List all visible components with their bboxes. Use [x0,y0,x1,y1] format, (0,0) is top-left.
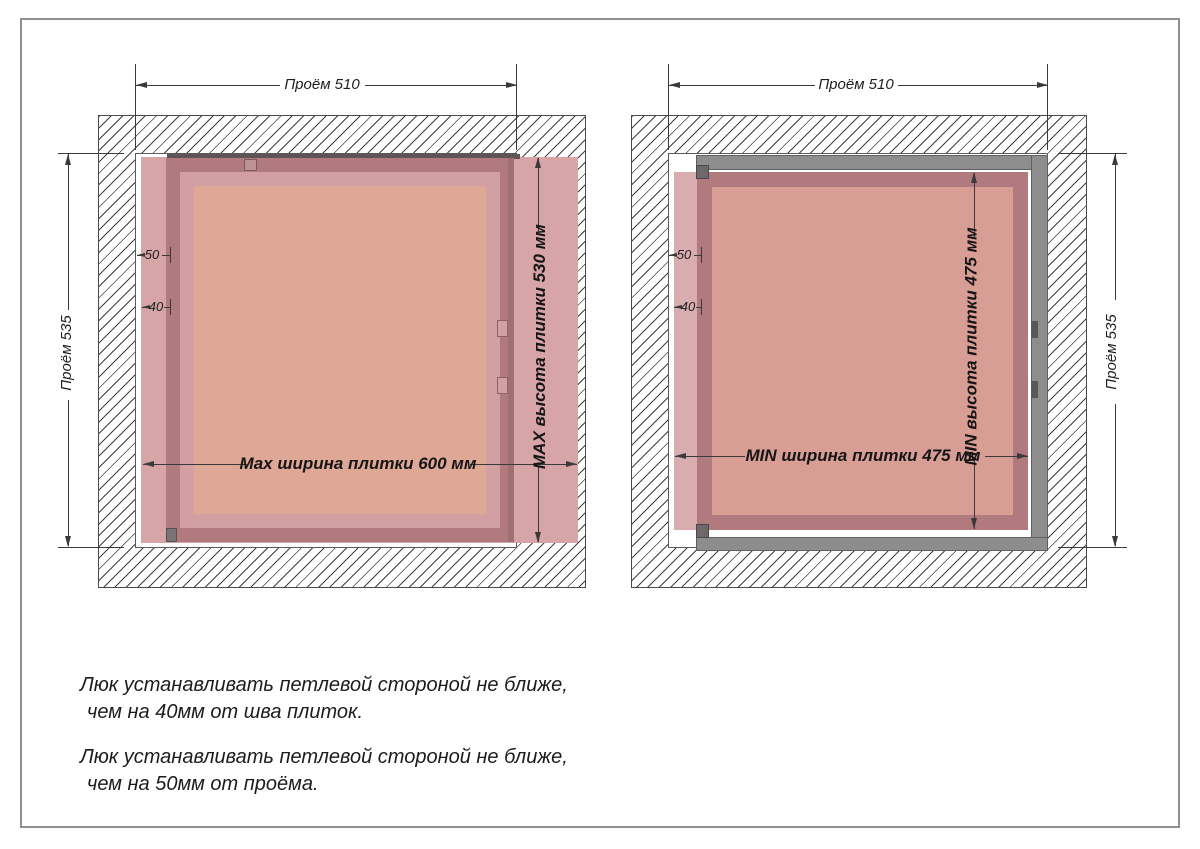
hinge-pin [244,159,257,171]
dim-tile-width-label: Max ширина плитки 600 мм [238,454,478,474]
metal-frame-bottom [696,537,1048,551]
extension-line [1047,64,1048,150]
tile-min-strip [674,172,697,530]
dim-tick [701,247,702,263]
latch-pin [1031,321,1038,338]
dim-hinge-offset-50: 50 [137,248,167,262]
latch-pin [497,320,508,337]
arrowhead-left [675,453,686,459]
arrowhead-up [535,157,541,168]
dim-hinge-offset-50: 50 [669,248,699,262]
dim-line [143,464,247,465]
metal-frame-top [696,155,1048,170]
dim-line [470,464,577,465]
dim-tile-height-label: MIN высота плитки 475 мм [962,231,982,466]
arrowhead-right [1017,453,1028,459]
arrowhead-right [566,461,577,467]
arrowhead-left [143,461,154,467]
latch-pin [1031,381,1038,398]
dim-opening-height-label: Проём 535 [58,278,76,428]
extension-line [1058,547,1127,548]
arrowhead-up [971,172,977,183]
dim-opening-height-label: Проём 535 [1103,277,1121,427]
arrowhead-down [65,536,71,547]
note-line: чем на 40мм от шва плиток. [87,701,363,724]
arrowhead-right [506,82,517,88]
extension-line [516,64,517,150]
dim-line [538,158,539,232]
arrowhead-left [669,82,680,88]
arrowhead-down [535,532,541,543]
arrowhead-up [1112,154,1118,165]
note-line: Люк устанавливать петлевой стороной не б… [80,674,568,697]
drawing-canvas: Проём 510 Проём 535 Max ширина плитки 60… [0,0,1200,849]
extension-line [58,547,124,548]
latch-pin [497,377,508,394]
extension-line [668,64,669,150]
door-right-edge [508,158,514,542]
note-line: Люк устанавливать петлевой стороной не б… [80,746,568,769]
hinge-pin [166,528,177,542]
extension-line [135,64,136,150]
arrowhead-down [971,518,977,529]
dim-tile-height-label: MAX высота плитки 530 мм [530,229,550,469]
dim-opening-width-label: Проём 510 [781,76,931,94]
hinge-pin [696,524,709,538]
dim-tile-width-label: MIN ширина плитки 475 мм [743,446,983,466]
metal-frame-right [1031,155,1048,551]
note-line: чем на 50мм от проёма. [87,773,319,796]
hinge-pin [696,165,709,179]
dim-opening-width-label: Проём 510 [247,76,397,94]
arrowhead-right [1037,82,1048,88]
arrowhead-up [65,154,71,165]
dim-line [538,466,539,542]
arrowhead-left [136,82,147,88]
dim-hinge-offset-40: 40 [141,300,171,314]
arrowhead-down [1112,536,1118,547]
dim-hinge-offset-40: 40 [673,300,703,314]
dim-tick [170,247,171,263]
